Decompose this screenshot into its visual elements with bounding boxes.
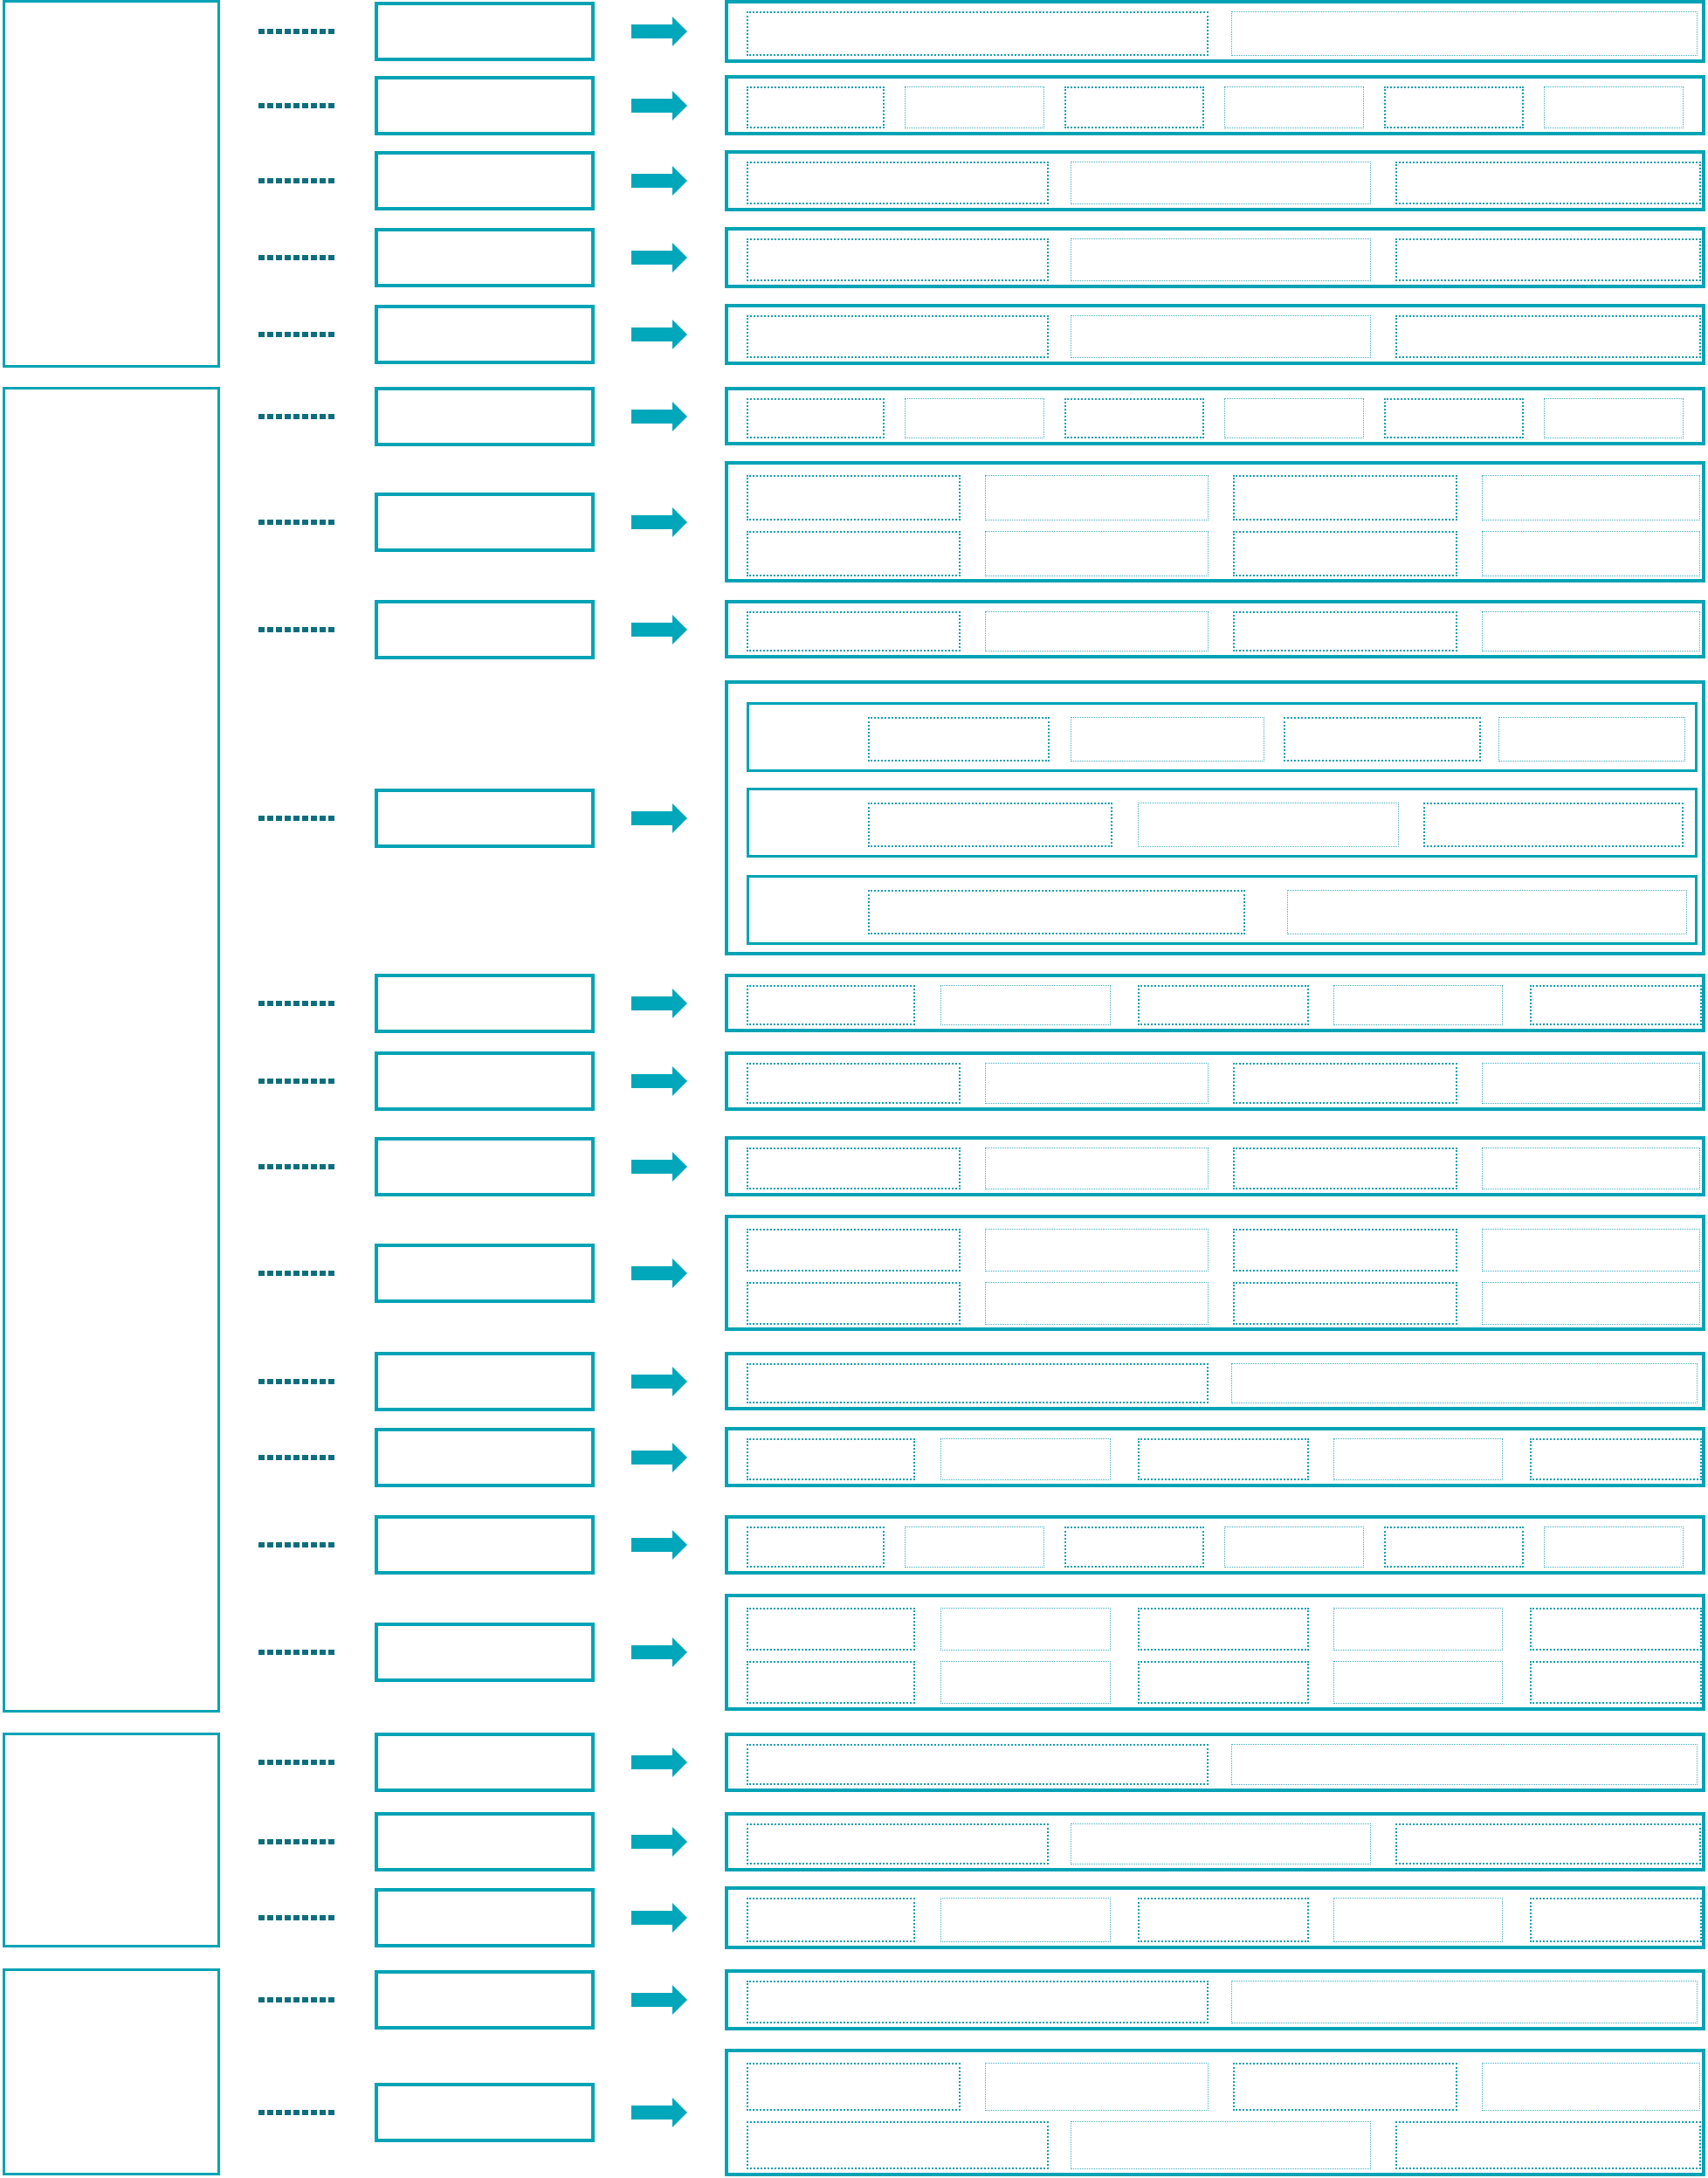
target-chip-placeholder — [1395, 2121, 1701, 2169]
source-item-box — [375, 1623, 595, 1682]
source-item-box — [375, 1970, 595, 2030]
target-chip-placeholder — [985, 1063, 1209, 1104]
target-chip-placeholder — [747, 475, 961, 520]
target-chip-placeholder — [1071, 238, 1371, 281]
target-chip-placeholder — [747, 1661, 915, 1704]
target-chip-placeholder — [905, 86, 1044, 128]
target-chip-placeholder — [1138, 1608, 1309, 1651]
target-row-container — [725, 1215, 1705, 1331]
target-chip-placeholder — [1233, 1148, 1457, 1189]
target-chip-placeholder — [940, 1608, 1111, 1651]
target-chip-placeholder — [747, 531, 961, 576]
target-chip-placeholder — [747, 2063, 961, 2111]
source-item-box — [375, 1051, 595, 1111]
target-chip-placeholder — [747, 2121, 1049, 2169]
target-chip-placeholder — [1138, 1898, 1309, 1942]
target-chip-placeholder — [985, 531, 1209, 576]
target-chip-placeholder — [747, 1744, 1209, 1785]
dashed-connector — [258, 1379, 337, 1384]
target-row-container — [725, 227, 1705, 288]
target-chip-placeholder — [1064, 1527, 1204, 1568]
target-row-container — [725, 1136, 1705, 1196]
source-item-box — [375, 305, 595, 364]
target-chip-placeholder — [747, 162, 1049, 204]
dashed-connector — [258, 1839, 337, 1844]
source-item-box — [375, 1888, 595, 1947]
target-chip-placeholder — [1138, 1438, 1309, 1480]
category-group-box — [3, 387, 220, 1713]
dashed-connector — [258, 1455, 337, 1460]
target-chip-placeholder — [1384, 86, 1524, 128]
target-chip-placeholder — [747, 1981, 1209, 2023]
target-chip-placeholder — [1071, 315, 1371, 358]
dashed-connector — [258, 520, 337, 525]
target-chip-placeholder — [985, 611, 1209, 651]
target-chip-placeholder — [1333, 1898, 1503, 1942]
target-row-container — [725, 974, 1705, 1032]
target-chip-placeholder — [1482, 611, 1700, 651]
target-row-container — [725, 680, 1705, 955]
arrow-icon — [631, 2098, 687, 2127]
target-chip-placeholder — [747, 398, 885, 438]
target-chip-placeholder — [940, 1898, 1111, 1942]
target-chip-placeholder — [905, 1527, 1044, 1568]
target-chip-placeholder — [1530, 1661, 1702, 1704]
target-chip-placeholder — [1384, 1527, 1524, 1568]
arrow-icon — [631, 1827, 687, 1857]
dashed-connector — [258, 1650, 337, 1655]
target-chip-placeholder — [1233, 1282, 1457, 1325]
target-row-container — [725, 1427, 1705, 1487]
source-item-box — [375, 1137, 595, 1196]
target-row-container — [725, 461, 1705, 582]
nested-sub-container — [747, 875, 1698, 945]
target-chip-placeholder — [1233, 531, 1457, 576]
target-chip-placeholder — [1395, 162, 1701, 204]
category-group-box — [3, 1733, 220, 1947]
category-group-box — [3, 0, 220, 368]
target-chip-placeholder — [747, 1282, 961, 1325]
target-row-container — [725, 2049, 1705, 2176]
arrow-icon — [631, 243, 687, 272]
target-chip-placeholder — [747, 1527, 885, 1568]
source-item-box — [375, 387, 595, 446]
target-chip-placeholder — [747, 238, 1049, 281]
dashed-connector — [258, 1001, 337, 1006]
target-chip-placeholder — [747, 86, 885, 128]
target-chip-placeholder — [1233, 1063, 1457, 1104]
arrow-icon — [631, 1152, 687, 1182]
dashed-connector — [258, 2110, 337, 2115]
target-chip-placeholder — [1482, 1229, 1700, 1272]
target-chip-placeholder — [1224, 398, 1364, 438]
target-chip-placeholder — [1064, 86, 1204, 128]
arrow-icon — [631, 1367, 687, 1396]
arrow-icon — [631, 1066, 687, 1096]
dashed-connector — [258, 1164, 337, 1169]
source-item-box — [375, 76, 595, 135]
target-chip-placeholder — [1287, 890, 1687, 934]
target-chip-placeholder — [1482, 1148, 1700, 1189]
target-chip-placeholder — [985, 1229, 1209, 1272]
target-chip-placeholder — [985, 475, 1209, 520]
target-chip-placeholder — [1395, 238, 1701, 281]
target-chip-placeholder — [1138, 803, 1399, 847]
dashed-connector — [258, 414, 337, 419]
target-chip-placeholder — [905, 398, 1044, 438]
source-item-box — [375, 600, 595, 659]
target-chip-placeholder — [1423, 803, 1684, 847]
target-chip-placeholder — [1530, 1898, 1702, 1942]
target-chip-placeholder — [1224, 1527, 1364, 1568]
source-item-box — [375, 1428, 595, 1487]
dashed-connector — [258, 1997, 337, 2002]
dashed-connector — [258, 103, 337, 108]
target-chip-placeholder — [985, 1148, 1209, 1189]
target-chip-placeholder — [1333, 985, 1503, 1025]
target-chip-placeholder — [1138, 1661, 1309, 1704]
target-chip-placeholder — [747, 11, 1209, 56]
target-chip-placeholder — [1284, 717, 1481, 762]
target-chip-placeholder — [1544, 86, 1684, 128]
target-chip-placeholder — [1530, 1608, 1702, 1651]
target-row-container — [725, 1594, 1705, 1711]
target-row-container — [725, 304, 1705, 365]
target-chip-placeholder — [1071, 2121, 1371, 2169]
source-item-box — [375, 2083, 595, 2142]
target-chip-placeholder — [940, 1661, 1111, 1704]
arrow-icon — [631, 1258, 687, 1288]
arrow-icon — [631, 166, 687, 196]
target-chip-placeholder — [868, 717, 1050, 762]
target-chip-placeholder — [985, 2063, 1209, 2111]
arrow-icon — [631, 17, 687, 46]
arrow-icon — [631, 91, 687, 121]
source-item-box — [375, 1244, 595, 1303]
target-row-container — [725, 1969, 1705, 2030]
dashed-connector — [258, 255, 337, 260]
arrow-icon — [631, 1530, 687, 1560]
target-chip-placeholder — [1544, 398, 1684, 438]
target-chip-placeholder — [1233, 611, 1457, 651]
nested-sub-container — [747, 788, 1698, 858]
target-row-container — [725, 1352, 1705, 1410]
arrow-icon — [631, 615, 687, 644]
target-chip-placeholder — [747, 985, 915, 1025]
dashed-connector — [258, 816, 337, 821]
target-chip-placeholder — [1231, 1744, 1698, 1785]
target-row-container — [725, 1051, 1705, 1111]
target-chip-placeholder — [1231, 11, 1698, 56]
source-item-box — [375, 1733, 595, 1792]
source-item-box — [375, 974, 595, 1033]
target-chip-placeholder — [1482, 475, 1700, 520]
target-chip-placeholder — [940, 985, 1111, 1025]
target-chip-placeholder — [747, 1608, 915, 1651]
source-item-box — [375, 151, 595, 210]
target-chip-placeholder — [1544, 1527, 1684, 1568]
target-row-container — [725, 0, 1705, 63]
target-chip-placeholder — [747, 1363, 1209, 1403]
target-chip-placeholder — [1233, 475, 1457, 520]
arrow-icon — [631, 320, 687, 349]
source-item-box — [375, 228, 595, 287]
target-chip-placeholder — [940, 1438, 1111, 1480]
target-row-container — [725, 387, 1705, 445]
arrow-icon — [631, 1903, 687, 1933]
category-group-box — [3, 1968, 220, 2175]
target-chip-placeholder — [1071, 162, 1371, 204]
diagram-canvas — [0, 0, 1708, 2178]
target-chip-placeholder — [1482, 2063, 1700, 2111]
target-chip-placeholder — [1071, 717, 1264, 762]
nested-sub-container — [747, 702, 1698, 772]
dashed-connector — [258, 627, 337, 632]
source-item-box — [375, 2, 595, 61]
dashed-connector — [258, 1271, 337, 1276]
dashed-connector — [258, 1760, 337, 1765]
target-row-container — [725, 600, 1705, 658]
target-chip-placeholder — [1384, 398, 1524, 438]
target-row-container — [725, 1812, 1705, 1871]
target-chip-placeholder — [1233, 2063, 1457, 2111]
target-chip-placeholder — [747, 1148, 961, 1189]
dashed-connector — [258, 1915, 337, 1920]
target-chip-placeholder — [1498, 717, 1685, 762]
target-chip-placeholder — [1333, 1608, 1503, 1651]
arrow-icon — [631, 1637, 687, 1667]
target-chip-placeholder — [747, 1438, 915, 1480]
target-row-container — [725, 1515, 1705, 1575]
target-row-container — [725, 1733, 1705, 1792]
arrow-icon — [631, 507, 687, 537]
target-chip-placeholder — [1395, 1823, 1701, 1864]
source-item-box — [375, 1515, 595, 1575]
target-chip-placeholder — [1530, 1438, 1702, 1480]
target-chip-placeholder — [1482, 1282, 1700, 1325]
arrow-icon — [631, 1443, 687, 1472]
target-chip-placeholder — [1333, 1438, 1503, 1480]
target-chip-placeholder — [1482, 531, 1700, 576]
target-row-container — [725, 75, 1705, 135]
target-chip-placeholder — [1138, 985, 1309, 1025]
arrow-icon — [631, 989, 687, 1018]
dashed-connector — [258, 1542, 337, 1547]
target-chip-placeholder — [747, 1063, 961, 1104]
source-item-box — [375, 1352, 595, 1411]
target-chip-placeholder — [747, 1823, 1049, 1864]
target-row-container — [725, 1886, 1705, 1949]
target-chip-placeholder — [747, 611, 961, 651]
target-chip-placeholder — [1231, 1363, 1698, 1403]
arrow-icon — [631, 1747, 687, 1777]
target-chip-placeholder — [1395, 315, 1701, 358]
target-chip-placeholder — [747, 1229, 961, 1272]
target-chip-placeholder — [1224, 86, 1364, 128]
source-item-box — [375, 493, 595, 552]
source-item-box — [375, 789, 595, 848]
arrow-icon — [631, 402, 687, 431]
target-chip-placeholder — [1064, 398, 1204, 438]
target-chip-placeholder — [747, 315, 1049, 358]
target-chip-placeholder — [868, 890, 1245, 934]
source-item-box — [375, 1812, 595, 1871]
target-chip-placeholder — [1233, 1229, 1457, 1272]
target-chip-placeholder — [868, 803, 1112, 847]
dashed-connector — [258, 1079, 337, 1084]
target-chip-placeholder — [747, 1898, 915, 1942]
target-chip-placeholder — [985, 1282, 1209, 1325]
target-chip-placeholder — [1333, 1661, 1503, 1704]
target-chip-placeholder — [1231, 1981, 1698, 2023]
arrow-icon — [631, 1985, 687, 2015]
target-chip-placeholder — [1071, 1823, 1371, 1864]
target-chip-placeholder — [1482, 1063, 1700, 1104]
dashed-connector — [258, 29, 337, 34]
dashed-connector — [258, 178, 337, 183]
target-chip-placeholder — [1530, 985, 1702, 1025]
target-row-container — [725, 150, 1705, 211]
arrow-icon — [631, 803, 687, 833]
dashed-connector — [258, 332, 337, 337]
